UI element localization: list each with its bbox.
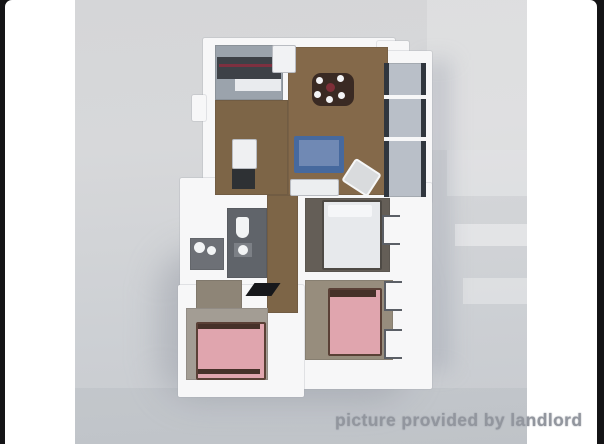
- toilet: [236, 217, 249, 238]
- watermark-text: picture provided by landlord: [335, 407, 593, 433]
- background-stripe: [463, 278, 527, 304]
- kitchen-counter-accent: [219, 64, 279, 67]
- second-bath-sink: [194, 242, 205, 253]
- second-bath-fixture: [207, 246, 216, 255]
- background-stripe: [447, 150, 527, 196]
- balcony-railing-glass: [421, 63, 426, 197]
- bed-pillows: [328, 205, 372, 217]
- sofa: [294, 136, 344, 173]
- plate: [314, 91, 321, 98]
- balcony-frame-bar: [384, 137, 426, 141]
- floorplan: [178, 33, 432, 397]
- bed-second: [328, 288, 382, 356]
- wall-stub-left: [192, 95, 206, 121]
- dark-appliance: [232, 169, 255, 189]
- table-centerpiece: [326, 83, 335, 92]
- plate: [326, 96, 333, 103]
- refrigerator: [272, 45, 296, 73]
- balcony-frame-bar: [384, 95, 426, 99]
- window-master: [382, 215, 400, 245]
- screenshot-root: { "window": { "frame_color": "#141416", …: [0, 0, 604, 444]
- bed-frame-bottom: [198, 369, 260, 374]
- washer: [232, 139, 257, 169]
- content-page: picture provided by landlord: [5, 0, 597, 444]
- sink-basin: [238, 245, 248, 255]
- plate: [316, 77, 323, 84]
- dining-table: [312, 73, 354, 106]
- bed-master: [322, 200, 382, 270]
- balcony-glass-door: [384, 63, 389, 197]
- kitchen-cabinet-front: [235, 79, 281, 91]
- background-stripe: [455, 224, 527, 246]
- floorplan-photo: [75, 0, 527, 444]
- bed-frame-top: [198, 324, 260, 329]
- plate: [337, 75, 344, 82]
- sink-counter: [234, 243, 252, 257]
- bed-headboard: [330, 290, 376, 297]
- viewer-window: picture provided by landlord: [0, 0, 604, 444]
- balcony-floor: [384, 63, 426, 197]
- coffee-table: [290, 179, 339, 196]
- bed-third: [196, 322, 266, 380]
- window-second-b: [384, 329, 402, 359]
- plate: [338, 92, 345, 99]
- sofa-seat: [299, 140, 339, 166]
- window-second-a: [384, 281, 402, 311]
